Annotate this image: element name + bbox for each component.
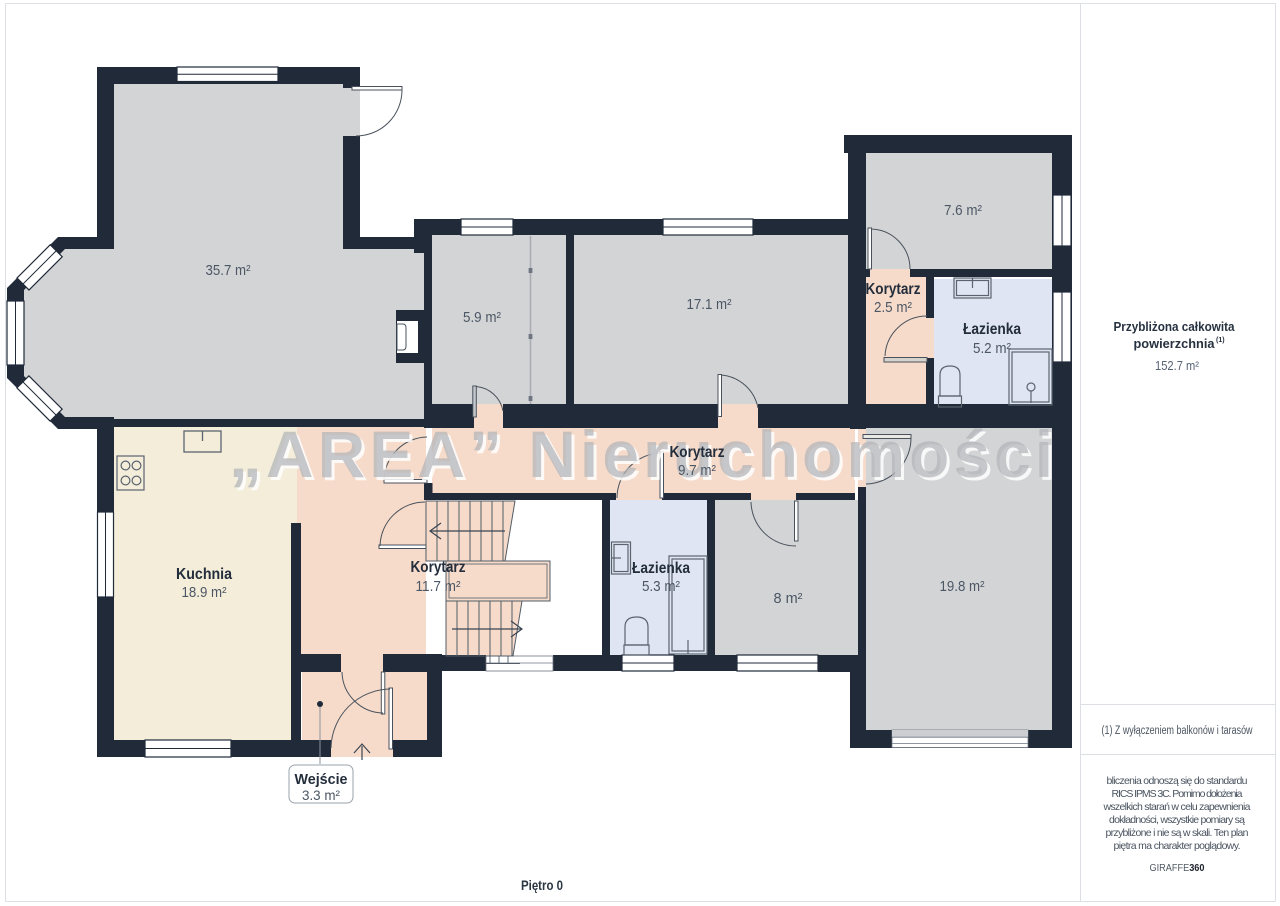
svg-text:19.8 m²: 19.8 m² [940, 579, 985, 595]
svg-text:wszelkich starań w celu zapewn: wszelkich starań w celu zapewnienia [1103, 801, 1251, 813]
svg-text:35.7 m²: 35.7 m² [206, 263, 251, 279]
svg-text:RICS IPMS 3C. Pomimo dołożenia: RICS IPMS 3C. Pomimo dołożenia [1112, 788, 1243, 800]
svg-text:18.9 m²: 18.9 m² [182, 585, 227, 601]
svg-text:Wejście: Wejście [295, 771, 348, 788]
svg-text:17.1 m²: 17.1 m² [687, 297, 732, 313]
svg-text:Korytarz: Korytarz [411, 559, 466, 576]
svg-text:piętra ma charakter poglądowy.: piętra ma charakter poglądowy. [1114, 840, 1241, 852]
svg-text:Łazienka: Łazienka [632, 560, 690, 577]
svg-text:5.3 m²: 5.3 m² [642, 579, 680, 595]
svg-text:3.3 m²: 3.3 m² [302, 787, 340, 803]
svg-text:GIRAFFE360: GIRAFFE360 [1150, 863, 1205, 874]
svg-text:(1) Z wyłączeniem balkonów i t: (1) Z wyłączeniem balkonów i tarasów [1102, 725, 1254, 737]
svg-text:8 m²: 8 m² [774, 591, 803, 607]
svg-text:przybliżone i nie są w skali.: przybliżone i nie są w skali. Ten plan [1106, 827, 1249, 839]
svg-text:Kuchnia: Kuchnia [176, 566, 232, 583]
svg-text:„AREA” Nieruchomości: „AREA” Nieruchomości [229, 417, 1057, 491]
svg-text:Korytarz: Korytarz [866, 281, 921, 298]
svg-text:7.6 m²: 7.6 m² [944, 203, 982, 219]
svg-text:Łazienka: Łazienka [963, 321, 1021, 338]
svg-text:5.9 m²: 5.9 m² [463, 310, 501, 326]
svg-text:9.7 m²: 9.7 m² [678, 463, 716, 479]
svg-text:Korytarz: Korytarz [670, 444, 725, 461]
svg-text:(1): (1) [1216, 337, 1225, 344]
svg-text:2.5 m²: 2.5 m² [874, 300, 912, 316]
svg-text:11.7 m²: 11.7 m² [416, 579, 461, 595]
svg-text:Piętro 0: Piętro 0 [521, 877, 563, 893]
svg-text:dokładności, wszystkie pomiary: dokładności, wszystkie pomiary są [1109, 814, 1245, 826]
svg-text:powierzchnia: powierzchnia [1134, 337, 1216, 351]
svg-text:bliczenia odnoszą się do stand: bliczenia odnoszą się do standardu [1107, 775, 1248, 787]
svg-text:Przybliżona całkowita: Przybliżona całkowita [1114, 320, 1236, 334]
svg-text:152.7 m²: 152.7 m² [1155, 359, 1199, 373]
svg-text:5.2 m²: 5.2 m² [973, 341, 1011, 357]
